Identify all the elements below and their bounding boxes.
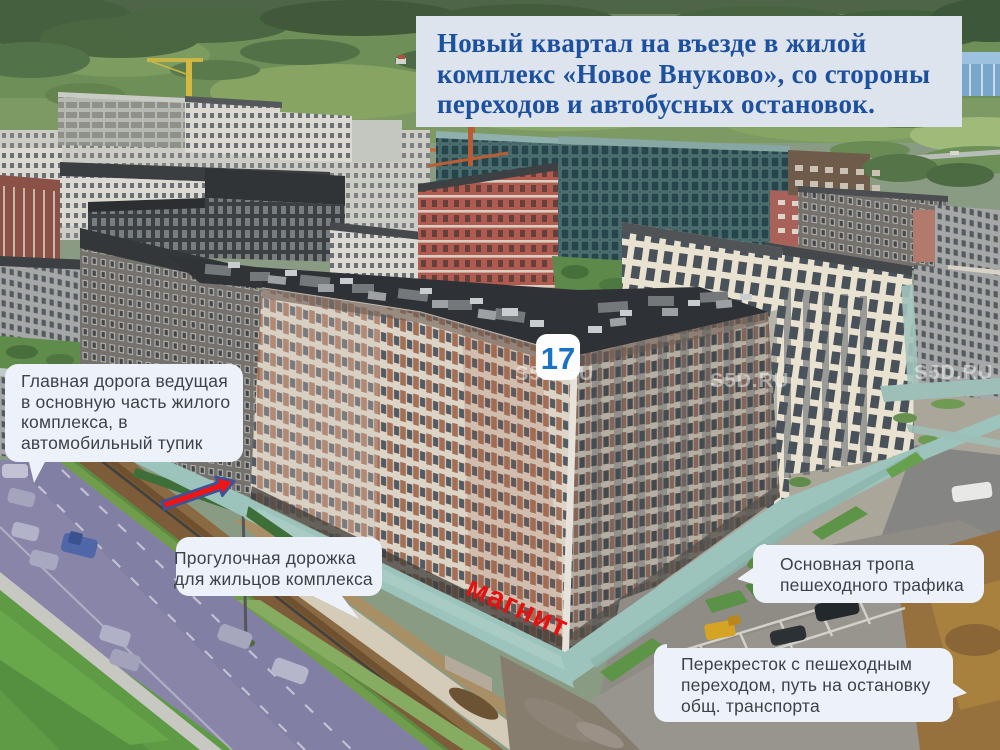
svg-text:S5D.RU: S5D.RU (914, 362, 993, 384)
svg-text:S5D.RU: S5D.RU (710, 370, 789, 392)
svg-text:17: 17 (541, 341, 575, 376)
